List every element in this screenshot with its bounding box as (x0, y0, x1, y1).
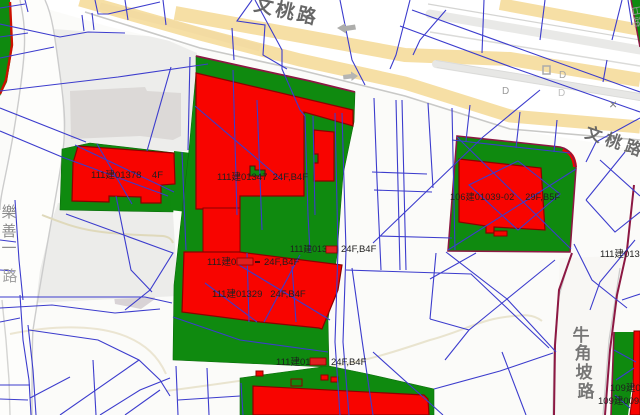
svg-text:D: D (502, 86, 509, 97)
svg-text:路: 路 (2, 268, 17, 285)
svg-text:角: 角 (575, 344, 592, 363)
svg-text:24F,B4F: 24F,B4F (264, 257, 300, 268)
svg-text:24F,B4F: 24F,B4F (341, 244, 377, 255)
svg-text:106建01039-02 29F,B5F: 106建01039-02 29F,B5F (450, 191, 560, 202)
svg-text:路: 路 (578, 382, 595, 401)
svg-text:善: 善 (1, 223, 16, 240)
svg-text:111建01347 24F,B4F: 111建01347 24F,B4F (217, 171, 308, 183)
svg-text:109建00: 109建00 (610, 382, 640, 394)
svg-text:111建01: 111建01 (276, 356, 311, 368)
svg-text:111建01329 24F,B4F: 111建01329 24F,B4F (212, 288, 306, 300)
svg-text:坡: 坡 (576, 363, 593, 382)
svg-text:D: D (558, 88, 565, 99)
svg-text:111建013: 111建013 (290, 243, 327, 254)
svg-text:111建01: 111建01 (207, 256, 242, 268)
svg-text:24F,B4F: 24F,B4F (331, 357, 367, 368)
svg-text:111建01378 4F: 111建01378 4F (91, 169, 163, 181)
svg-text:樂: 樂 (1, 204, 16, 221)
svg-text:111建013: 111建013 (600, 248, 640, 260)
svg-text:×: × (609, 96, 617, 112)
svg-text:109建00946: 109建00946 (598, 395, 640, 407)
svg-text:牛: 牛 (573, 326, 590, 345)
svg-text:一: 一 (1, 240, 16, 257)
svg-text:D: D (559, 70, 566, 81)
